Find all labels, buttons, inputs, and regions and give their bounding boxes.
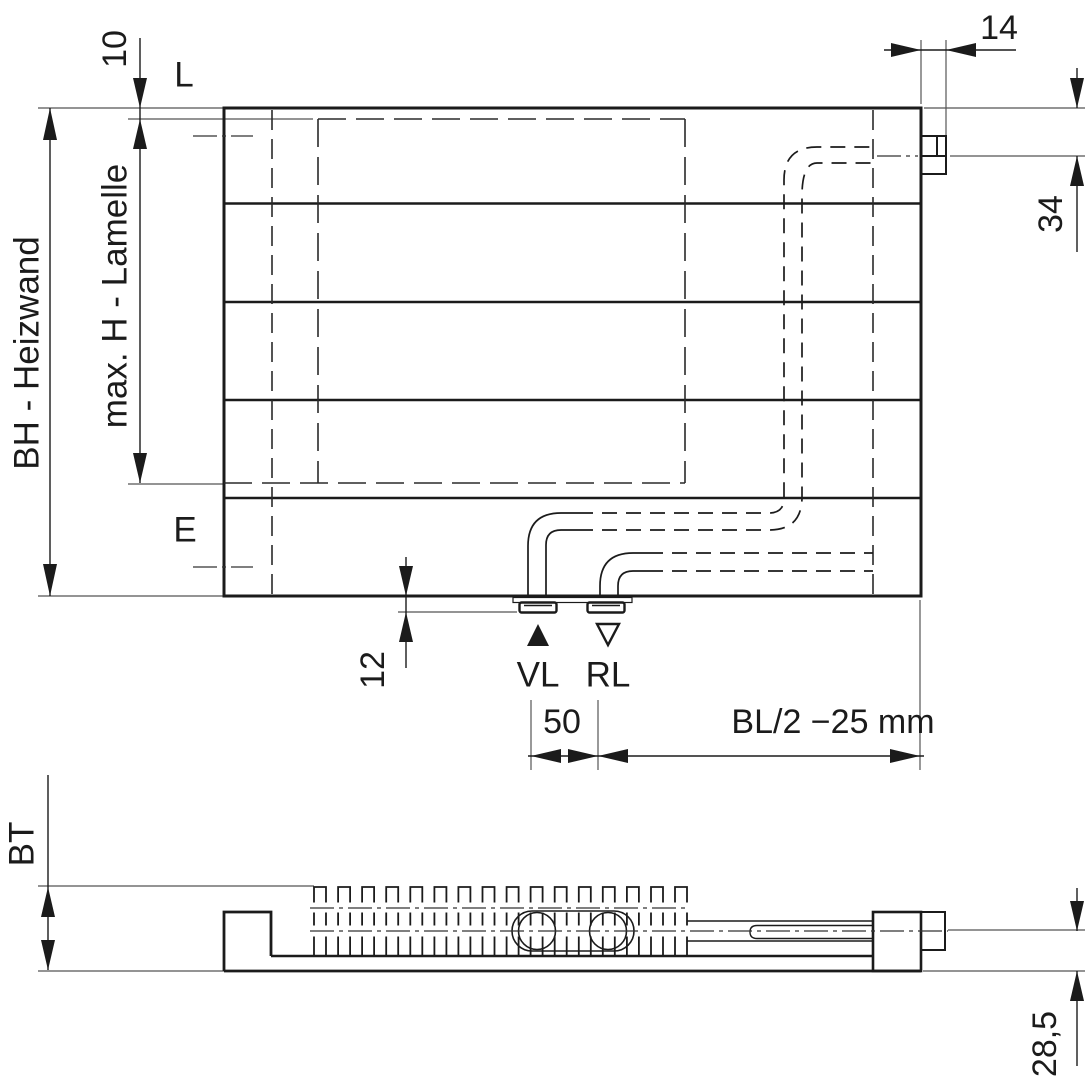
dim-label-28-5: 28,5	[1026, 1011, 1064, 1077]
technical-drawing-page: 10 L 14 34 BH - Heizwand max. H - Lamell…	[0, 0, 1091, 1080]
lug-centerline-marks	[193, 136, 918, 567]
label-bottom-lug: E	[173, 510, 196, 549]
extension-lines-front	[38, 40, 1085, 770]
label-supply-vl: VL	[517, 655, 560, 694]
dim-label-12: 12	[354, 651, 392, 689]
return-flow-icon	[597, 624, 619, 645]
return-pipe	[600, 553, 873, 597]
collector-seam-lines	[272, 110, 873, 596]
dim-label-34: 34	[1032, 195, 1070, 233]
radiator-row-lines	[224, 204, 921, 499]
label-max-h-lamelle: max. H - Lamelle	[95, 164, 134, 429]
label-bt: BT	[2, 822, 41, 867]
radiator-body-outline	[224, 108, 921, 596]
label-top-lug: L	[174, 55, 193, 94]
supply-pipe	[528, 147, 873, 597]
mounting-bracket-left	[224, 912, 271, 971]
dim-label-10: 10	[96, 30, 134, 68]
radiator-technical-drawing: 10 L 14 34 BH - Heizwand max. H - Lamell…	[0, 0, 1091, 1080]
label-return-rl: RL	[586, 655, 631, 694]
dim-label-50: 50	[543, 703, 581, 741]
supply-flow-icon	[527, 624, 549, 646]
front-view: 10 L 14 34 BH - Heizwand max. H - Lamell…	[7, 9, 1085, 770]
dim-label-bl2: BL/2 −25 mm	[731, 703, 934, 741]
dim-label-14: 14	[980, 9, 1018, 47]
wall-connection-tab	[921, 136, 946, 174]
dimensions-side	[41, 775, 1084, 1066]
label-bh-heizwand: BH - Heizwand	[7, 236, 46, 469]
connection-nipples	[513, 598, 632, 613]
side-view: BT 28,5	[2, 775, 1085, 1077]
end-block-right	[873, 912, 921, 971]
